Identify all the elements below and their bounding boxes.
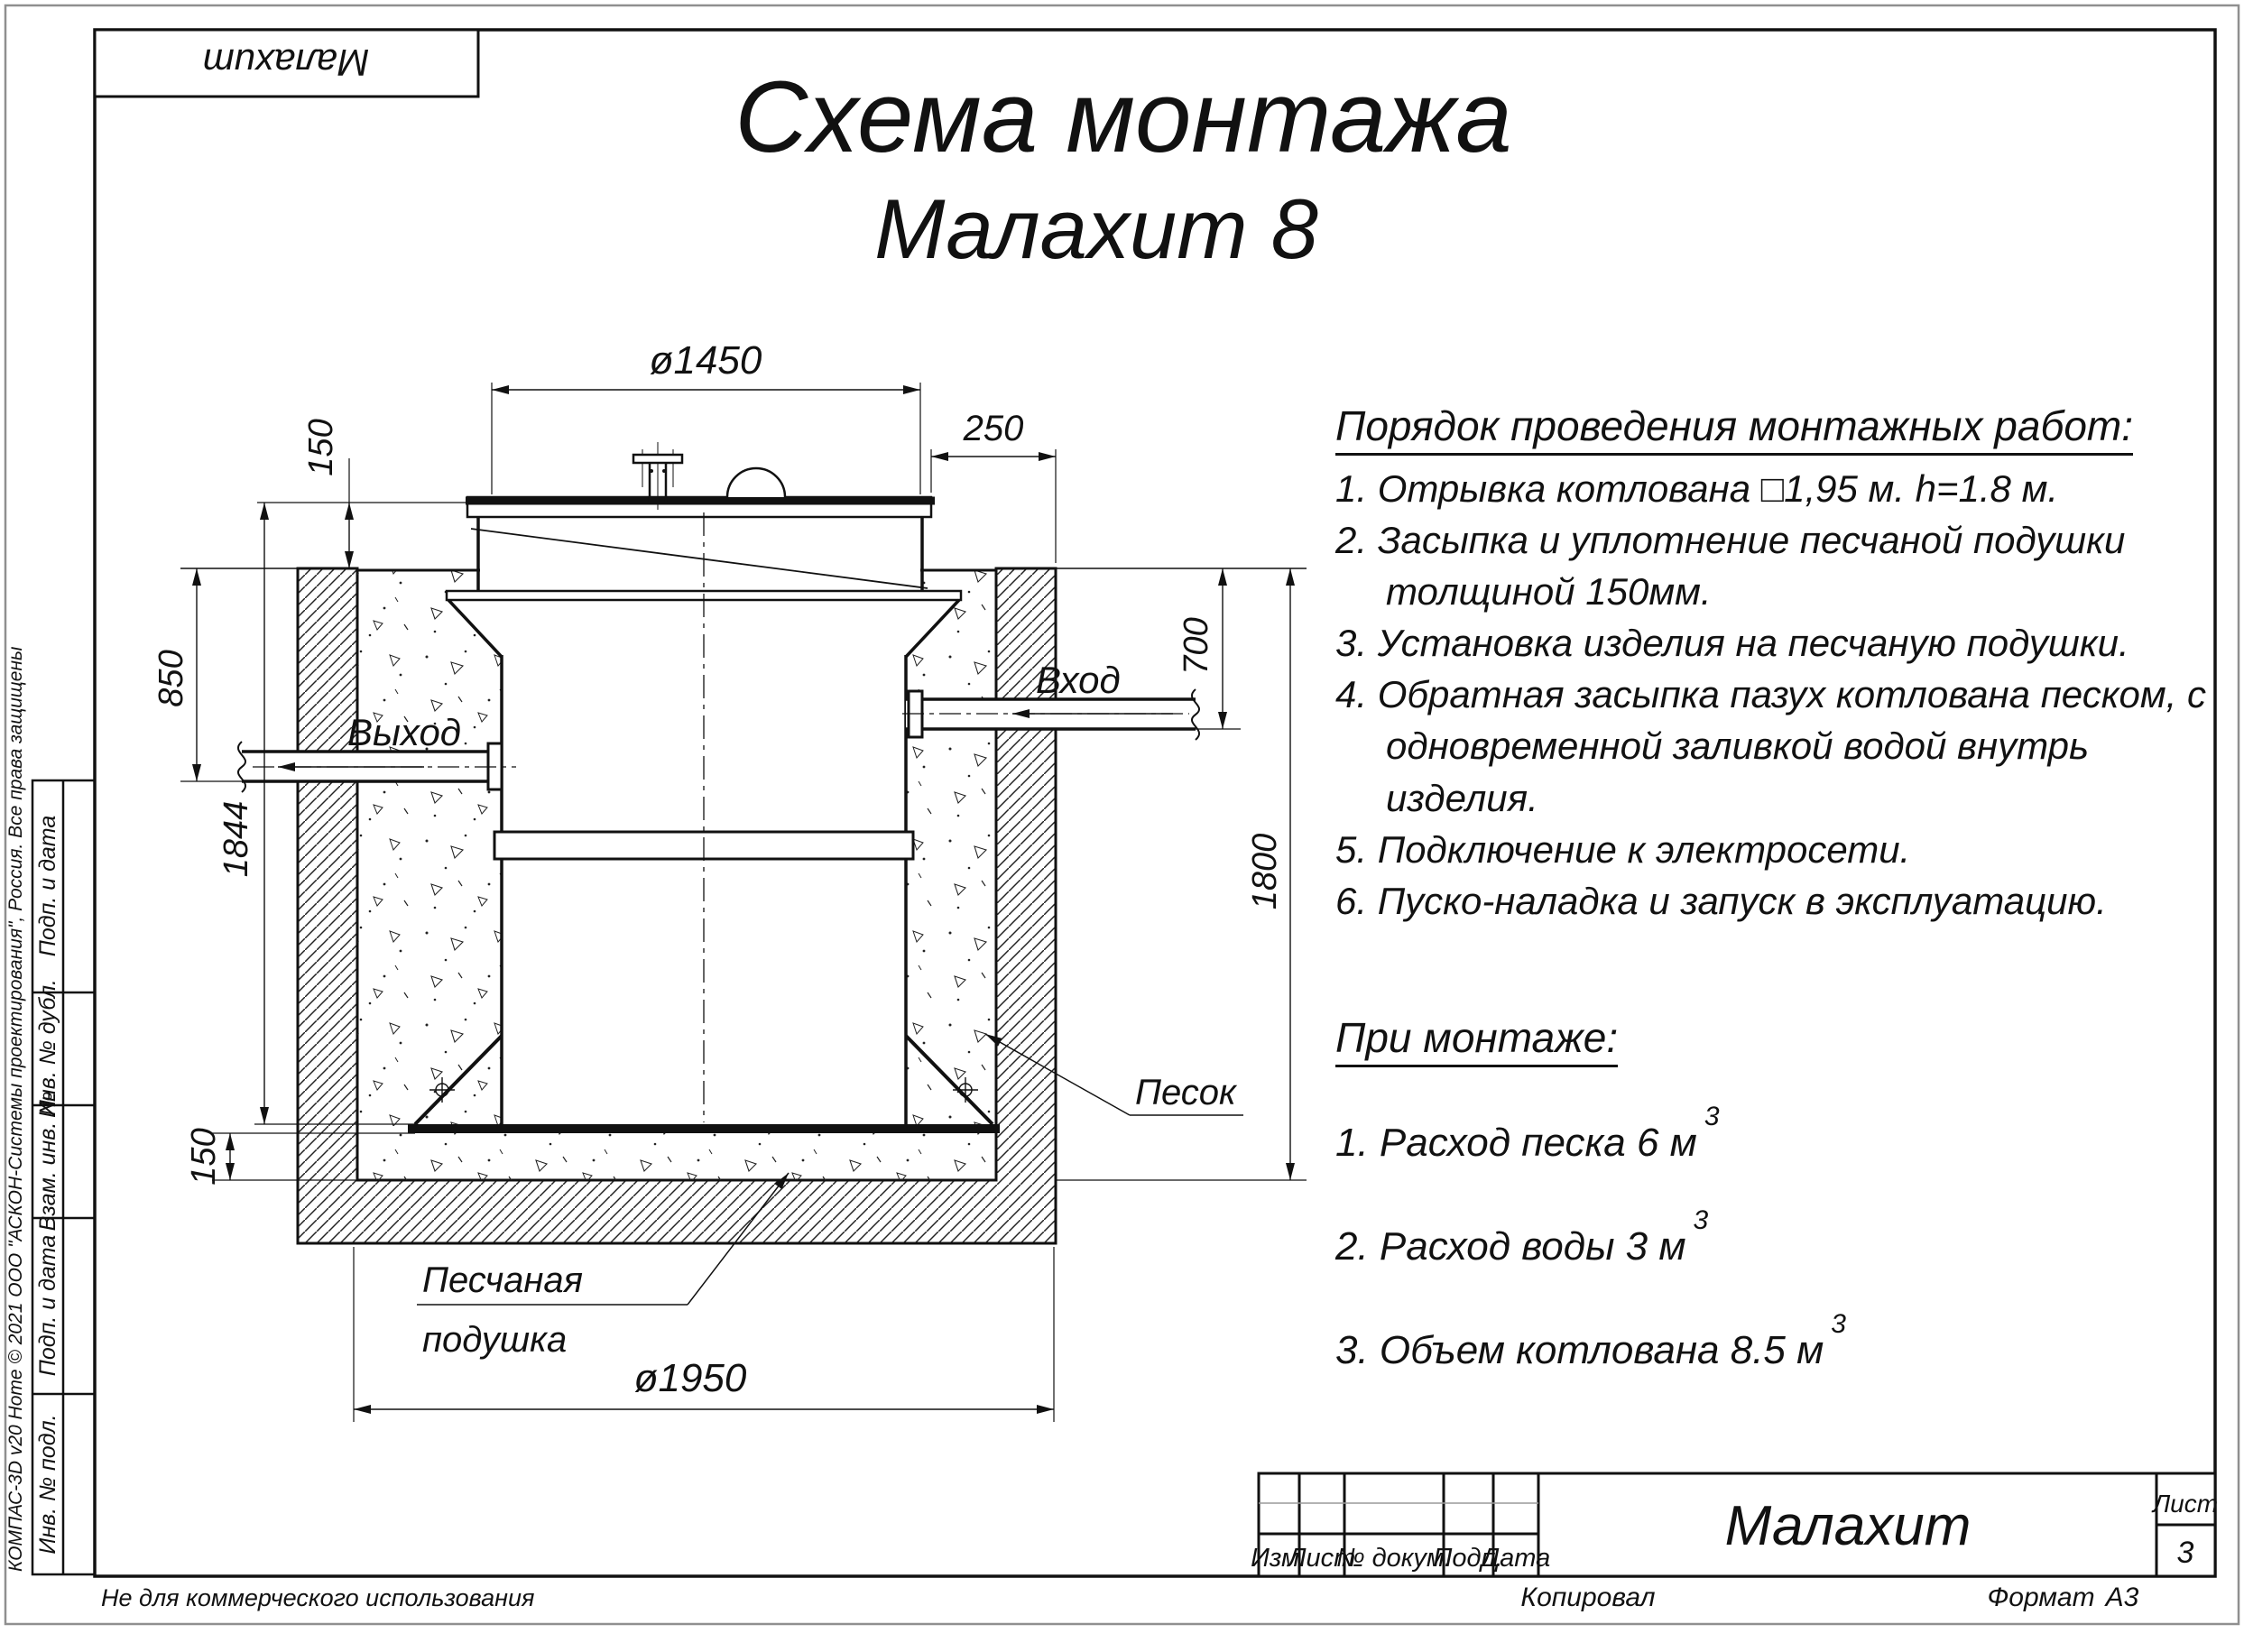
instruction-item: 6. Пуско-наладка и запуск в эксплуатацию…	[1335, 875, 2230, 927]
side-stamp-cell-2: Взам. инв. №	[35, 1092, 60, 1232]
cushion-label-line1: Песчаная	[422, 1260, 583, 1300]
title-line2: Малахит 8	[874, 181, 1318, 276]
montage-item: 3. Объем котлована 8.5 м3	[1335, 1309, 2147, 1373]
format-value: А3	[2104, 1583, 2139, 1612]
instruction-item: 1. Отрывка котлована □1,95 м. h=1.8 м.	[1335, 463, 2230, 514]
manhole-dome	[727, 468, 785, 497]
montage-item: 2. Расход воды 3 м3	[1335, 1205, 2147, 1269]
side-stamp: Подп. и дата Инв. № дубл. Взам. инв. № П…	[32, 780, 95, 1574]
dim-1450: ø1450	[650, 338, 762, 383]
installation-instructions: Порядок проведения монтажных работ: 1. О…	[1335, 402, 2230, 927]
dim-1950: ø1950	[634, 1356, 747, 1400]
side-stamp-cell-3: Подп. и дата	[35, 1235, 60, 1377]
montage-notes: При монтаже: 1. Расход песка 6 м3 2. Рас…	[1335, 1014, 2147, 1373]
instruction-item: 4. Обратная засыпка пазух котлована песк…	[1335, 669, 2230, 823]
dim-700: 700	[1177, 617, 1215, 674]
instruction-item: 2. Засыпка и уплотнение песчаной подушки…	[1335, 514, 2230, 617]
copyright-vertical: КОМПАС-3D v20 Home © 2021 ООО "АСКОН-Сис…	[5, 646, 26, 1572]
outlet-label: Выход	[347, 711, 461, 753]
not-for-commercial-note: Не для коммерческого использования	[101, 1584, 534, 1611]
cushion-label-line2: подушка	[422, 1320, 567, 1360]
montage-item: 1. Расход песка 6 м3	[1335, 1102, 2147, 1166]
dim-1800: 1800	[1246, 834, 1284, 910]
tb-col-data: Дата	[1479, 1544, 1551, 1573]
sheet-title: Схема монтажа Малахит 8	[734, 60, 1511, 276]
dim-150-top: 150	[302, 419, 340, 475]
sand-cushion	[357, 1133, 996, 1180]
copied-label: Копировал	[1520, 1583, 1655, 1612]
inlet-label: Вход	[1036, 659, 1121, 701]
dim-1844: 1844	[217, 801, 255, 878]
instruction-item: 3. Установка изделия на песчаную подушки…	[1335, 617, 2230, 669]
side-stamp-cell-4: Инв. № подл.	[35, 1414, 60, 1554]
installation-drawing: Выход Вход	[152, 338, 1307, 1422]
instruction-item: 5. Подключение к электросети.	[1335, 824, 2230, 875]
tb-sheet-number: 3	[2177, 1536, 2194, 1570]
drawing-sheet: Малахит Схема монтажа Малахит 8	[0, 0, 2244, 1652]
format-label: Формат	[1987, 1583, 2094, 1612]
dim-250: 250	[963, 409, 1024, 448]
tb-sheet-label: Лист	[2151, 1490, 2218, 1518]
bottom-plate	[408, 1124, 1000, 1133]
corner-stamp-title: Малахит	[203, 42, 370, 84]
title-block: Изм. Лист № докум. Подп. Дата Малахит Ли…	[1251, 1473, 2218, 1576]
tb-document-name: Малахит	[1725, 1495, 1972, 1557]
dim-150-bottom: 150	[185, 1128, 223, 1185]
sand-label: Песок	[1135, 1073, 1238, 1112]
title-line1: Схема монтажа	[734, 60, 1511, 173]
montage-heading: При монтаже:	[1335, 1014, 2147, 1062]
instructions-heading: Порядок проведения монтажных работ:	[1335, 402, 2230, 450]
side-stamp-cell-0: Подп. и дата	[35, 816, 60, 957]
dim-850: 850	[152, 650, 190, 706]
